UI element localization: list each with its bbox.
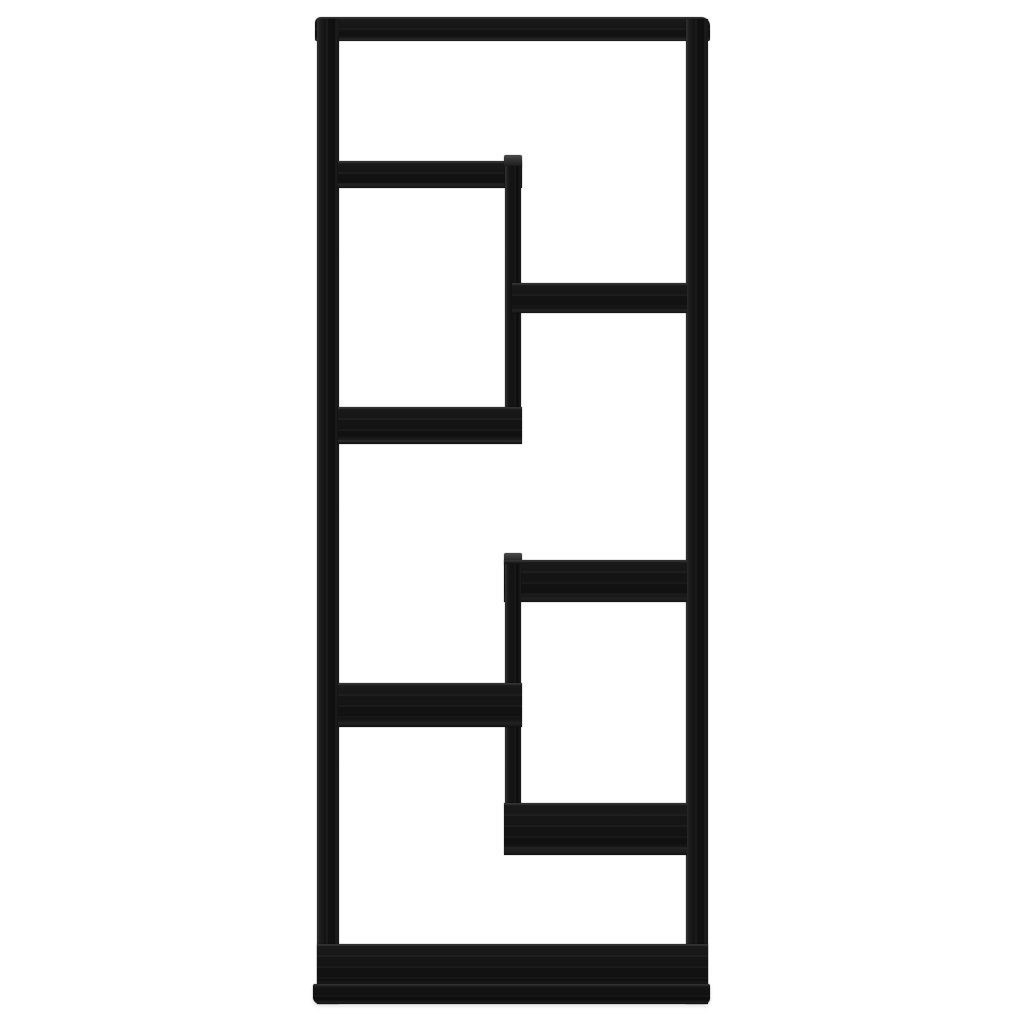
shelf-lower-left (338, 683, 522, 727)
shelf-top-left (338, 161, 522, 188)
product-photo (0, 0, 1024, 1024)
base-lip (313, 984, 710, 1004)
shelf-bottom-right (504, 803, 687, 855)
shelf-middle-left (338, 407, 522, 444)
shelf-upper-right (512, 283, 687, 313)
right-rail (686, 19, 708, 1004)
top-bar (315, 17, 710, 41)
shelf-middle-right (504, 560, 687, 602)
left-rail (317, 19, 339, 1004)
